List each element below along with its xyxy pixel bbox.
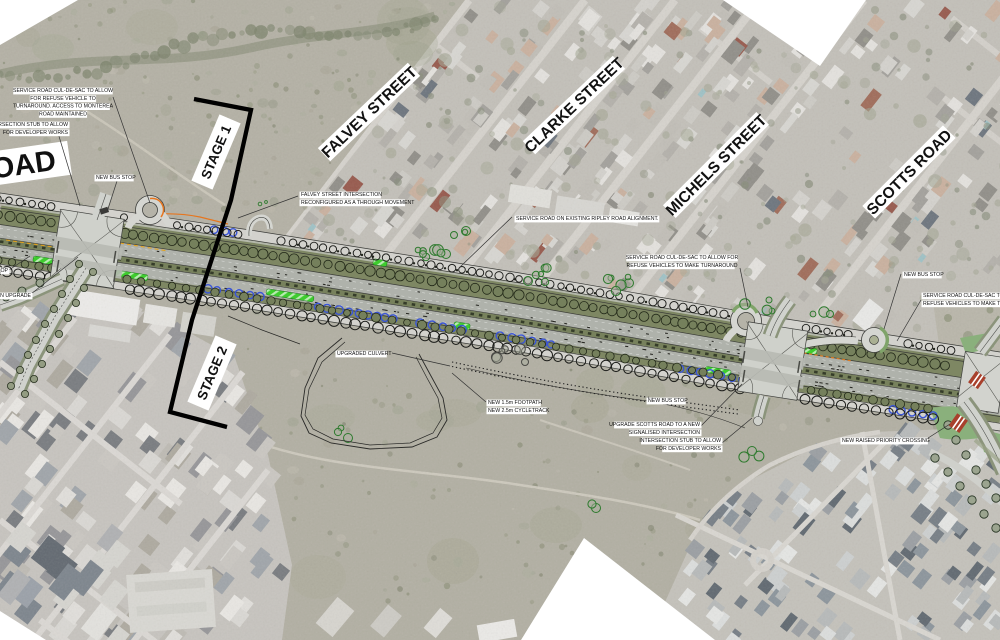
svg-text:REFUSE VEHICLES TO MAKE TURNAR: REFUSE VEHICLES TO MAKE TURNAROUND [627,263,738,269]
svg-text:SERVICE ROAD ON EXISTING RIPLE: SERVICE ROAD ON EXISTING RIPLEY ROAD ALI… [516,216,659,222]
svg-text:OP: OP [1,268,9,274]
svg-text:NEW BUS STOP: NEW BUS STOP [904,272,944,278]
svg-text:FOR REFUSE VEHICLE TO: FOR REFUSE VEHICLE TO [30,96,96,102]
svg-text:FALVEY STREET INTERSECTION: FALVEY STREET INTERSECTION [301,192,382,198]
svg-text:NEW 2.5m CYCLETRACK: NEW 2.5m CYCLETRACK [488,408,550,414]
svg-text:REFUSE VEHICLES TO MAKE TUR: REFUSE VEHICLES TO MAKE TUR [923,301,1000,307]
svg-text:SIGNALISED INTERSECTION: SIGNALISED INTERSECTION [629,430,700,436]
svg-text:ON UPGRADE: ON UPGRADE [0,293,32,299]
svg-text:SERVICE ROAD CUL-DE-SAC TO ALL: SERVICE ROAD CUL-DE-SAC TO ALLOW FOR [626,255,739,261]
svg-text:ERSECTION STUB TO ALLOW: ERSECTION STUB TO ALLOW [0,122,68,128]
svg-text:FOR DEVELOPER WORKS: FOR DEVELOPER WORKS [3,130,69,136]
svg-text:NEW BUS STOP: NEW BUS STOP [648,398,688,404]
svg-text:UPGRADED CULVERT: UPGRADED CULVERT [337,351,392,357]
svg-text:RECONFIGURED AS A THROUGH MOVE: RECONFIGURED AS A THROUGH MOVEMENT [301,200,415,206]
svg-text:SERVICE ROAD CUL-DE-SAC TO ALL: SERVICE ROAD CUL-DE-SAC TO ALLOW [13,88,113,94]
svg-text:INTERSECTION STUB TO ALLOW: INTERSECTION STUB TO ALLOW [639,438,721,444]
svg-text:NEW RAISED PRIORITY CROSSING: NEW RAISED PRIORITY CROSSING [842,438,930,444]
svg-text:SERVICE ROAD CUL-DE-SAC TO A: SERVICE ROAD CUL-DE-SAC TO A [923,293,1000,299]
svg-text:NEW BUS STOP: NEW BUS STOP [96,175,136,181]
svg-text:UPGRADE SCOTTS ROAD TO A NEW: UPGRADE SCOTTS ROAD TO A NEW [609,422,700,428]
svg-text:TURNAROUND. ACCESS TO MONTEREA: TURNAROUND. ACCESS TO MONTEREA [13,104,114,110]
svg-text:NEW 1.5m FOOTPATH: NEW 1.5m FOOTPATH [488,400,542,406]
svg-text:FOR DEVELOPER WORKS: FOR DEVELOPER WORKS [656,446,722,452]
svg-text:ROAD MAINTAINED: ROAD MAINTAINED [39,111,87,117]
